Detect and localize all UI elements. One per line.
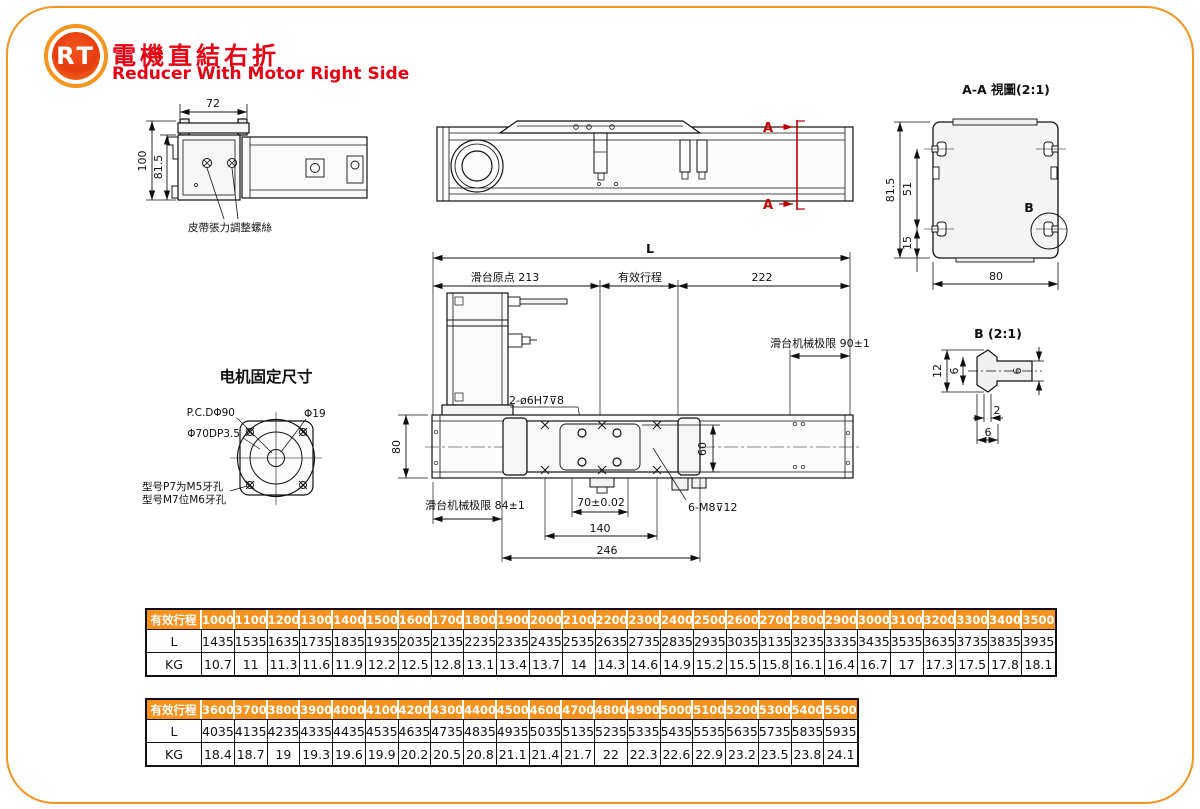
- dim-81-5-endview: 81.5: [152, 155, 165, 180]
- value-cell: 3735: [956, 629, 989, 652]
- value-cell: 1935: [366, 629, 399, 652]
- value-cell: 14.6: [628, 652, 661, 675]
- stroke-value-cell: 3500: [1022, 610, 1055, 629]
- value-cell: 2435: [530, 629, 563, 652]
- value-cell: 5035: [530, 719, 563, 742]
- belt-tension-note: 皮帶張力調整螺絲: [188, 221, 272, 234]
- value-cell: 3135: [760, 629, 793, 652]
- value-cell: 13.7: [530, 652, 563, 675]
- thread-note-2: 型号M7位M6牙孔: [142, 493, 226, 506]
- shaft-label: Φ19: [304, 408, 326, 420]
- stroke-value-cell: 2900: [825, 610, 858, 629]
- stroke-value-cell: 5100: [693, 700, 726, 719]
- value-cell: 4335: [300, 719, 333, 742]
- value-cell: 5835: [792, 719, 825, 742]
- value-cell: 1735: [300, 629, 333, 652]
- stroke-value-cell: 2500: [694, 610, 727, 629]
- screw-label: 6-M8⊽12: [688, 501, 738, 514]
- stroke-value-cell: 3000: [858, 610, 891, 629]
- value-cell: 16.1: [792, 652, 825, 675]
- stroke-value-cell: 2200: [596, 610, 629, 629]
- stroke-value-cell: 5500: [824, 700, 857, 719]
- value-cell: 13.4: [497, 652, 530, 675]
- value-cell: 20.2: [399, 742, 432, 765]
- dim-246: 246: [597, 544, 618, 557]
- dim-51: 51: [901, 182, 914, 196]
- stroke-value-cell: 5200: [726, 700, 759, 719]
- stroke-value-cell: 4400: [464, 700, 497, 719]
- dim-L: L: [646, 241, 654, 256]
- value-cell: 4235: [268, 719, 301, 742]
- section-mark-a-bottom: A: [763, 198, 773, 213]
- limit-left-label: 滑台机械极限 84±1: [425, 498, 525, 512]
- value-cell: 14.3: [596, 652, 629, 675]
- stroke-value-cell: 1900: [497, 610, 530, 629]
- stroke-value-cell: 1100: [235, 610, 268, 629]
- stroke-value-cell: 4500: [497, 700, 530, 719]
- value-cell: 1435: [202, 629, 235, 652]
- side-view-drawing: [398, 252, 860, 562]
- stroke-value-cell: 4600: [530, 700, 563, 719]
- stroke-value-cell: 1300: [300, 610, 333, 629]
- value-cell: 1835: [333, 629, 366, 652]
- value-cell: 12.5: [399, 652, 432, 675]
- value-cell: 19: [268, 742, 301, 765]
- dim-100: 100: [136, 151, 149, 172]
- pcd-label: P.C.DΦ90: [187, 407, 235, 419]
- dim-6-left: 6: [948, 368, 961, 375]
- value-cell: 19.3: [300, 742, 333, 765]
- value-cell: 2035: [399, 629, 432, 652]
- limit-right-label: 滑台机械极限 90±1: [770, 336, 870, 350]
- dim-6-bottom: 6: [985, 426, 992, 439]
- stroke-value-cell: 2700: [760, 610, 793, 629]
- value-cell: 17: [891, 652, 924, 675]
- stroke-value-cell: 4200: [399, 700, 432, 719]
- stroke-value-cell: 2000: [530, 610, 563, 629]
- dim-15: 15: [901, 236, 914, 250]
- stroke-value-cell: 5000: [661, 700, 694, 719]
- value-cell: 22.6: [661, 742, 694, 765]
- stroke-spec-table-2: 有效行程360037003800390040004100420043004400…: [145, 698, 859, 767]
- dim-6-right: 6: [1011, 368, 1024, 375]
- stroke-value-cell: 5300: [759, 700, 792, 719]
- value-cell: 11.6: [300, 652, 333, 675]
- value-cell: 5635: [726, 719, 759, 742]
- dim-60: 60: [696, 442, 709, 456]
- dim-70: 70±0.02: [577, 496, 625, 509]
- value-cell: 11: [235, 652, 268, 675]
- top-view-drawing: [437, 121, 853, 201]
- stroke-value-cell: 4300: [431, 700, 464, 719]
- row-label-cell: L: [147, 719, 202, 742]
- value-cell: 14.9: [661, 652, 694, 675]
- value-cell: 12.2: [366, 652, 399, 675]
- value-cell: 23.8: [792, 742, 825, 765]
- value-cell: 4735: [431, 719, 464, 742]
- value-cell: 20.5: [431, 742, 464, 765]
- section-aa-drawing: [894, 119, 1067, 290]
- stroke-value-cell: 2600: [727, 610, 760, 629]
- value-cell: 11.3: [268, 652, 301, 675]
- value-cell: 16.4: [825, 652, 858, 675]
- stroke-value-cell: 1400: [333, 610, 366, 629]
- stroke-value-cell: 5400: [792, 700, 825, 719]
- value-cell: 5135: [562, 719, 595, 742]
- value-cell: 2835: [661, 629, 694, 652]
- value-cell: 15.5: [727, 652, 760, 675]
- value-cell: 21.1: [497, 742, 530, 765]
- value-cell: 10.7: [202, 652, 235, 675]
- value-cell: 21.4: [530, 742, 563, 765]
- motor-mount-title: 电机固定尺寸: [219, 367, 313, 386]
- value-cell: 4435: [333, 719, 366, 742]
- value-cell: 22: [595, 742, 628, 765]
- dim-140: 140: [590, 522, 611, 535]
- value-cell: 14: [563, 652, 596, 675]
- value-cell: 23.5: [759, 742, 792, 765]
- stroke-value-cell: 4100: [366, 700, 399, 719]
- value-cell: 2335: [497, 629, 530, 652]
- row-label-cell: KG: [147, 652, 202, 675]
- value-cell: 23.2: [726, 742, 759, 765]
- value-cell: 24.1: [824, 742, 857, 765]
- stroke-value-cell: 3800: [268, 700, 301, 719]
- stroke-value-cell: 3900: [300, 700, 333, 719]
- value-cell: 17.8: [989, 652, 1022, 675]
- value-cell: 13.1: [464, 652, 497, 675]
- value-cell: 5335: [628, 719, 661, 742]
- stroke-value-cell: 3300: [956, 610, 989, 629]
- stroke-value-cell: 2100: [563, 610, 596, 629]
- value-cell: 4535: [366, 719, 399, 742]
- value-cell: 4635: [399, 719, 432, 742]
- value-cell: 3635: [924, 629, 957, 652]
- stroke-value-cell: 2800: [792, 610, 825, 629]
- value-cell: 1535: [235, 629, 268, 652]
- value-cell: 2135: [432, 629, 465, 652]
- stroke-header-cell: 有效行程: [147, 610, 202, 629]
- value-cell: 12.8: [432, 652, 465, 675]
- dim-81-5-section: 81.5: [884, 178, 897, 203]
- value-cell: 1635: [268, 629, 301, 652]
- value-cell: 3235: [792, 629, 825, 652]
- value-cell: 2235: [464, 629, 497, 652]
- stroke-value-cell: 3400: [989, 610, 1022, 629]
- value-cell: 4035: [202, 719, 235, 742]
- origin-label: 滑台原点 213: [471, 270, 540, 284]
- detail-mark-b: B: [1024, 200, 1034, 215]
- value-cell: 5235: [595, 719, 628, 742]
- pilot-label: Φ70DP3.5: [187, 428, 240, 440]
- value-cell: 5735: [759, 719, 792, 742]
- dim-222: 222: [752, 271, 773, 284]
- value-cell: 18.4: [202, 742, 235, 765]
- value-cell: 3835: [989, 629, 1022, 652]
- value-cell: 22.9: [693, 742, 726, 765]
- value-cell: 2635: [596, 629, 629, 652]
- value-cell: 11.9: [333, 652, 366, 675]
- value-cell: 18.1: [1022, 652, 1055, 675]
- value-cell: 17.3: [924, 652, 957, 675]
- stroke-label: 有效行程: [618, 270, 662, 284]
- stroke-value-cell: 4700: [562, 700, 595, 719]
- value-cell: 19.6: [333, 742, 366, 765]
- value-cell: 5535: [693, 719, 726, 742]
- catalog-page: RT 電機直結右折 Reducer With Motor Right Side: [0, 0, 1200, 809]
- stroke-value-cell: 1800: [464, 610, 497, 629]
- row-label-cell: KG: [147, 742, 202, 765]
- value-cell: 19.9: [366, 742, 399, 765]
- dim-72: 72: [206, 97, 220, 110]
- stroke-spec-table-1: 有效行程100011001200130014001500160017001800…: [145, 608, 1057, 677]
- value-cell: 3335: [825, 629, 858, 652]
- dim-2: 2: [994, 404, 1001, 417]
- stroke-value-cell: 1500: [366, 610, 399, 629]
- value-cell: 3435: [858, 629, 891, 652]
- value-cell: 3535: [891, 629, 924, 652]
- row-label-cell: L: [147, 629, 202, 652]
- stroke-header-cell: 有效行程: [147, 700, 202, 719]
- motor-mount-drawing: [230, 412, 322, 505]
- end-view-drawing: [146, 104, 367, 219]
- pin-label: 2-ø6H7⊽8: [509, 394, 564, 407]
- section-aa-title: A-A 視圖(2:1): [962, 82, 1050, 97]
- value-cell: 2735: [628, 629, 661, 652]
- value-cell: 15.8: [760, 652, 793, 675]
- value-cell: 4135: [235, 719, 268, 742]
- dim-80-side: 80: [390, 440, 403, 454]
- value-cell: 15.2: [694, 652, 727, 675]
- stroke-value-cell: 4000: [333, 700, 366, 719]
- dim-80-section: 80: [989, 270, 1003, 283]
- value-cell: 4835: [464, 719, 497, 742]
- value-cell: 5435: [661, 719, 694, 742]
- value-cell: 16.7: [858, 652, 891, 675]
- dim-12: 12: [931, 364, 944, 378]
- value-cell: 2935: [694, 629, 727, 652]
- stroke-value-cell: 1700: [432, 610, 465, 629]
- stroke-value-cell: 4800: [595, 700, 628, 719]
- stroke-value-cell: 3100: [891, 610, 924, 629]
- value-cell: 3935: [1022, 629, 1055, 652]
- detail-b-title: B (2:1): [974, 326, 1022, 341]
- section-mark-a-top: A: [763, 121, 773, 136]
- stroke-value-cell: 1600: [399, 610, 432, 629]
- stroke-value-cell: 2300: [628, 610, 661, 629]
- stroke-value-cell: 3200: [924, 610, 957, 629]
- stroke-value-cell: 1200: [268, 610, 301, 629]
- stroke-value-cell: 2400: [661, 610, 694, 629]
- value-cell: 20.8: [464, 742, 497, 765]
- stroke-value-cell: 3700: [235, 700, 268, 719]
- value-cell: 5935: [824, 719, 857, 742]
- value-cell: 4935: [497, 719, 530, 742]
- stroke-value-cell: 4900: [628, 700, 661, 719]
- thread-note-1: 型号P7为M5牙孔: [142, 480, 224, 493]
- value-cell: 21.7: [562, 742, 595, 765]
- value-cell: 17.5: [956, 652, 989, 675]
- stroke-value-cell: 1000: [202, 610, 235, 629]
- value-cell: 2535: [563, 629, 596, 652]
- value-cell: 3035: [727, 629, 760, 652]
- detail-b-drawing: [941, 347, 1044, 444]
- value-cell: 18.7: [235, 742, 268, 765]
- value-cell: 22.3: [628, 742, 661, 765]
- technical-drawings: 72 100 81.5 皮帶張力調整螺絲: [0, 0, 1200, 600]
- stroke-value-cell: 3600: [202, 700, 235, 719]
